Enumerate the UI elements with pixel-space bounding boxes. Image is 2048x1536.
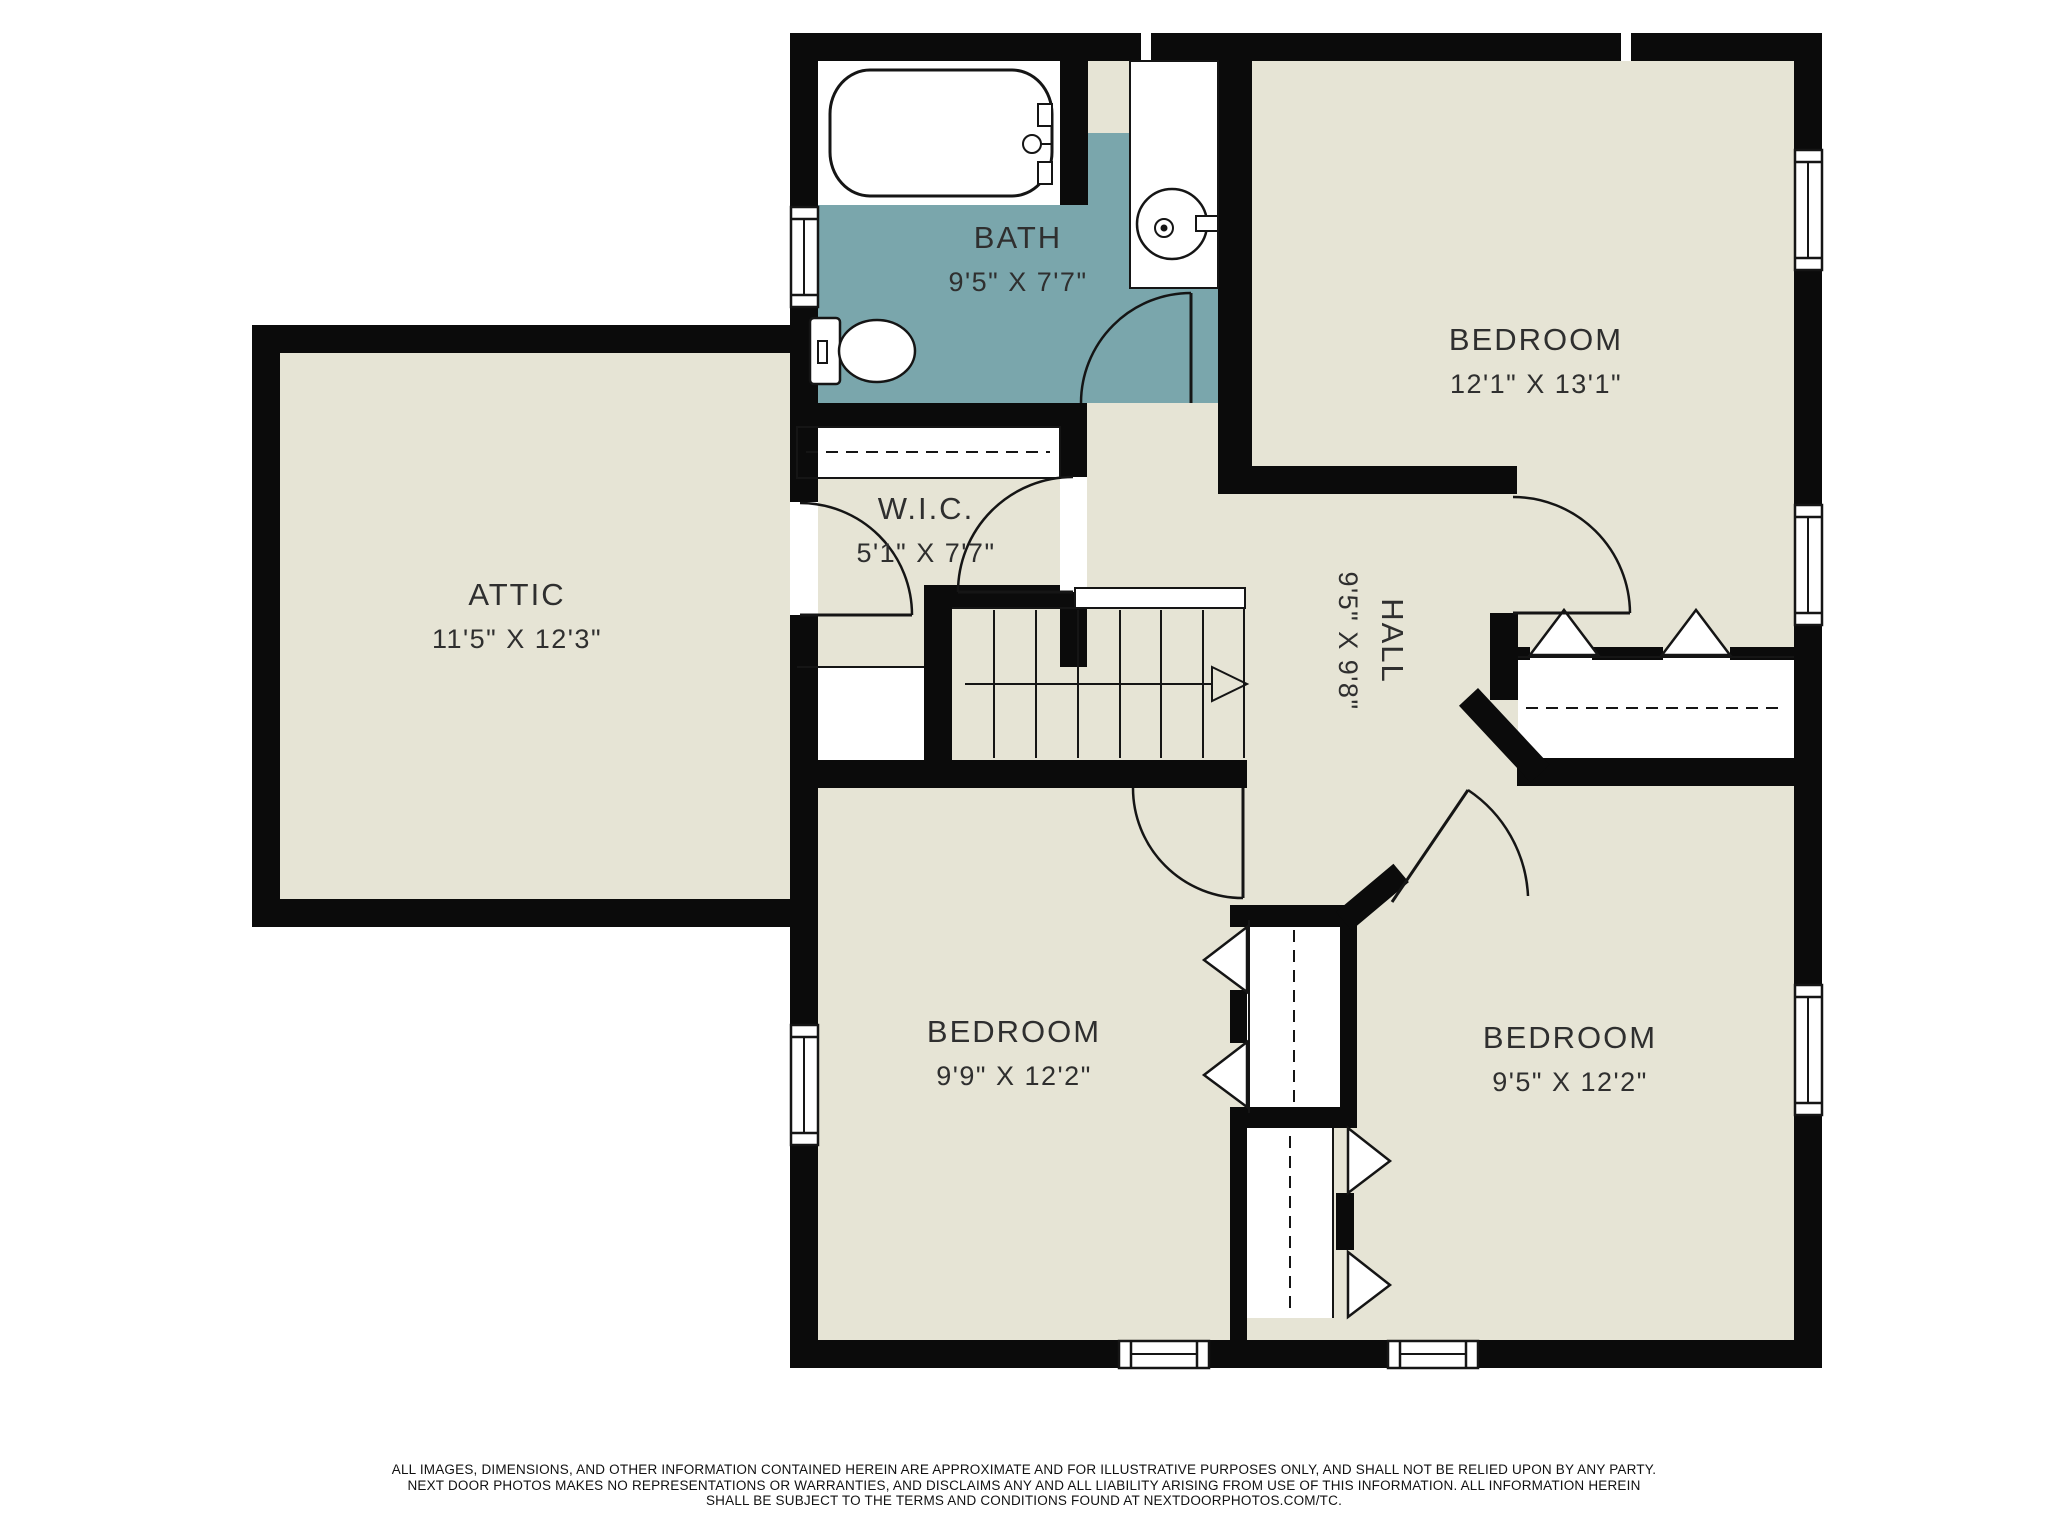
window-icon [791, 207, 818, 307]
room-dims: 12'1" X 13'1" [1449, 369, 1623, 400]
room-dims: 9'9" X 12'2" [927, 1061, 1101, 1092]
bedroom-right-door-icon [1392, 790, 1528, 902]
bathtub-icon [830, 70, 1052, 196]
room-label-hall: HALL 9'5" X 9'8" [1332, 571, 1410, 710]
room-name: ATTIC [432, 577, 602, 613]
room-label-bedroom-top-right: BEDROOM 12'1" X 13'1" [1449, 322, 1623, 400]
window-icon [1119, 1341, 1209, 1368]
window-icon [1795, 985, 1822, 1115]
stairs-up-arrow-icon [1212, 667, 1247, 701]
room-dims: 9'5" X 9'8" [1332, 571, 1363, 710]
disclaimer: ALL IMAGES, DIMENSIONS, AND OTHER INFORM… [174, 1462, 1874, 1509]
room-label-bedroom-bottom-right: BEDROOM 9'5" X 12'2" [1483, 1020, 1657, 1098]
disclaimer-line: SHALL BE SUBJECT TO THE TERMS AND CONDIT… [174, 1493, 1874, 1509]
room-name: W.I.C. [856, 491, 995, 527]
bedroom1-door-icon [1513, 497, 1630, 613]
sink-icon [1130, 61, 1218, 288]
disclaimer-line: NEXT DOOR PHOTOS MAKES NO REPRESENTATION… [174, 1478, 1874, 1494]
bedroom-left-door-icon [1133, 788, 1243, 898]
bifold-door-icon [1204, 927, 1247, 992]
disclaimer-line: ALL IMAGES, DIMENSIONS, AND OTHER INFORM… [174, 1462, 1874, 1478]
bifold-door-icon [1348, 1252, 1390, 1317]
bath-door-icon [1081, 293, 1191, 403]
room-dims: 11'5" X 12'3" [432, 624, 602, 655]
room-name: BEDROOM [1483, 1020, 1657, 1056]
bifold-door-icon [1348, 1128, 1390, 1193]
bifold-door-icon [1662, 610, 1730, 655]
window-icon [1795, 505, 1822, 625]
room-name: HALL [1374, 571, 1410, 710]
room-dims: 9'5" X 12'2" [1483, 1067, 1657, 1098]
staircase-icon [952, 588, 1247, 758]
room-dims: 9'5" X 7'7" [948, 267, 1087, 298]
room-dims: 5'1" X 7'7" [856, 538, 995, 569]
window-icon [791, 1025, 818, 1145]
closet-middle-icons [1204, 920, 1390, 1318]
bifold-door-icon [1530, 610, 1598, 655]
toilet-icon [810, 318, 915, 384]
window-icon [1795, 150, 1822, 270]
room-label-attic: ATTIC 11'5" X 12'3" [432, 577, 602, 655]
window-icon [1388, 1341, 1478, 1368]
room-label-bath: BATH 9'5" X 7'7" [948, 220, 1087, 298]
window-icons [791, 150, 1822, 1368]
room-name: BEDROOM [1449, 322, 1623, 358]
room-label-bedroom-bottom-left: BEDROOM 9'9" X 12'2" [927, 1014, 1101, 1092]
closet-right-icons [1518, 610, 1794, 708]
room-label-wic: W.I.C. 5'1" X 7'7" [856, 491, 995, 569]
room-name: BATH [948, 220, 1087, 256]
bifold-door-icon [1204, 1042, 1247, 1107]
floor-plan: BATH 9'5" X 7'7" BEDROOM 12'1" X 13'1" A… [0, 0, 2048, 1536]
room-name: BEDROOM [927, 1014, 1101, 1050]
